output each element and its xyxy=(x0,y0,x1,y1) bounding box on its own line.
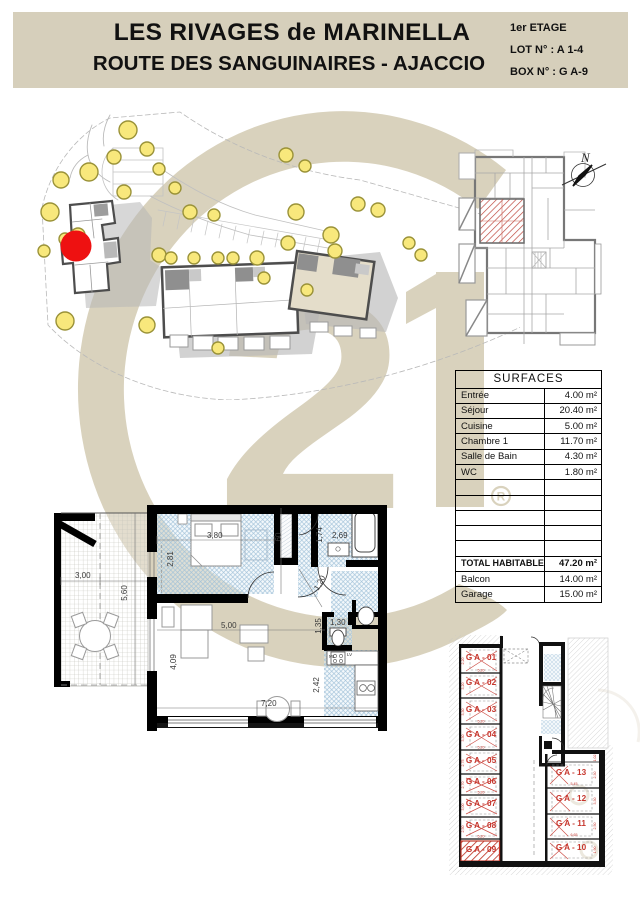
svg-text:3,80: 3,80 xyxy=(207,531,223,540)
svg-text:2,70: 2,70 xyxy=(461,782,465,789)
svg-text:N: N xyxy=(580,150,591,165)
svg-text:2,50: 2,50 xyxy=(593,823,597,830)
svg-text:G A - 08: G A - 08 xyxy=(466,821,497,830)
svg-text:1,74: 1,74 xyxy=(315,527,324,543)
svg-text:LV: LV xyxy=(347,652,352,657)
svg-text:G A - 09: G A - 09 xyxy=(466,845,497,854)
svg-text:5,45: 5,45 xyxy=(571,782,578,786)
svg-text:3,30: 3,30 xyxy=(593,798,597,805)
svg-text:G A - 10: G A - 10 xyxy=(556,843,587,852)
svg-text:2,81: 2,81 xyxy=(166,551,175,567)
svg-text:60: 60 xyxy=(274,532,283,541)
svg-text:1,02: 1,02 xyxy=(593,755,597,762)
svg-text:G A - 05: G A - 05 xyxy=(466,756,497,765)
svg-text:G A - 01: G A - 01 xyxy=(466,653,497,662)
svg-text:3,00: 3,00 xyxy=(75,571,91,580)
svg-text:5,20: 5,20 xyxy=(478,720,485,724)
svg-text:3,20: 3,20 xyxy=(461,683,465,690)
svg-text:5,20: 5,20 xyxy=(478,669,485,673)
svg-text:3,30: 3,30 xyxy=(461,735,465,742)
svg-text:3,00: 3,00 xyxy=(461,804,465,811)
svg-text:G A - 11: G A - 11 xyxy=(556,819,586,828)
svg-text:ML: ML xyxy=(329,654,336,659)
svg-text:7,20: 7,20 xyxy=(261,699,277,708)
svg-text:6,65: 6,65 xyxy=(571,833,578,837)
svg-text:2,69: 2,69 xyxy=(332,531,348,540)
svg-text:5,60: 5,60 xyxy=(120,585,129,601)
svg-text:G A - 13: G A - 13 xyxy=(556,768,587,777)
svg-text:G A - 07: G A - 07 xyxy=(466,799,497,808)
svg-text:2,50: 2,50 xyxy=(461,826,465,833)
svg-text:5,20: 5,20 xyxy=(478,746,485,750)
svg-text:1,30: 1,30 xyxy=(330,618,346,627)
svg-text:2,42: 2,42 xyxy=(312,677,321,693)
svg-text:2,75: 2,75 xyxy=(461,760,465,767)
svg-text:5,20: 5,20 xyxy=(478,791,485,795)
svg-text:G A - 03: G A - 03 xyxy=(466,705,497,714)
svg-text:G A - 06: G A - 06 xyxy=(466,777,497,786)
svg-text:5,20: 5,20 xyxy=(478,835,485,839)
svg-text:3,30: 3,30 xyxy=(461,709,465,716)
svg-text:2,20: 2,20 xyxy=(461,658,465,665)
svg-text:G A - 04: G A - 04 xyxy=(466,730,497,739)
svg-text:G A - 02: G A - 02 xyxy=(466,678,497,687)
svg-text:G A - 12: G A - 12 xyxy=(556,794,587,803)
svg-text:1,35: 1,35 xyxy=(314,618,323,634)
svg-text:2,30: 2,30 xyxy=(593,772,597,779)
svg-text:5,00: 5,00 xyxy=(221,621,237,630)
svg-text:1,90: 1,90 xyxy=(593,847,597,854)
svg-text:4,09: 4,09 xyxy=(169,654,178,670)
